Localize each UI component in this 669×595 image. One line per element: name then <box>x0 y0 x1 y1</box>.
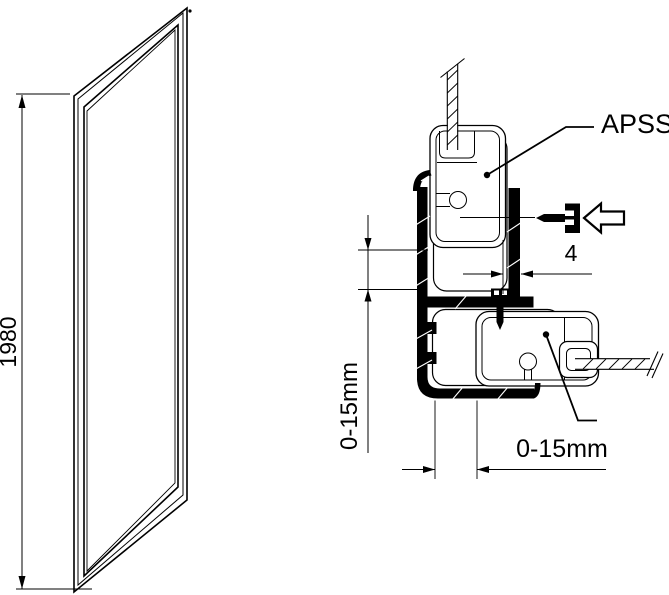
screw-head <box>565 204 580 234</box>
arrow-right-icon <box>423 466 435 473</box>
arrow-left-icon <box>477 466 489 473</box>
screw-channel-circle <box>520 353 537 370</box>
arrow-left-icon <box>521 271 533 278</box>
installation-diagram: 1980 <box>0 0 669 595</box>
screw-body <box>536 214 566 222</box>
screw-channel-circle <box>450 192 467 209</box>
horizontal-adjust-label: 0-15mm <box>516 435 608 463</box>
panel-glass-inner-line <box>87 30 175 571</box>
right-bar <box>509 188 521 301</box>
screw-head-notch <box>565 211 574 217</box>
break-line <box>652 354 663 379</box>
profile-name-label: APSS <box>601 109 669 139</box>
arrow-down-icon <box>365 238 372 250</box>
screw-head-notch <box>565 220 574 226</box>
arrow-up-icon <box>19 95 26 108</box>
apss-callout: APSS <box>484 109 669 178</box>
panel-height-label: 1980 <box>0 316 21 367</box>
side-panel-isometric <box>74 8 192 592</box>
horizontal-adjust-dimension: 0-15mm <box>402 401 608 480</box>
vertical-adjust-label: 0-15mm <box>336 362 363 450</box>
vertical-adjust-dimension: 0-15mm <box>336 215 428 453</box>
arrow-down-icon <box>19 576 26 589</box>
corner-dot <box>188 9 191 12</box>
gap-label: 4 <box>565 240 578 266</box>
wall-profile-section-bottom <box>433 310 599 387</box>
technical-drawing-page: 1980 <box>0 0 669 595</box>
screw-horizontal-icon <box>536 204 580 234</box>
arrow-up-icon <box>365 290 372 302</box>
panel-outer-frame <box>74 8 187 592</box>
insertion-arrow-icon <box>584 204 624 233</box>
panel-glass-edge <box>84 25 178 576</box>
profile-body <box>430 126 506 248</box>
screw-head-notch <box>494 291 499 296</box>
